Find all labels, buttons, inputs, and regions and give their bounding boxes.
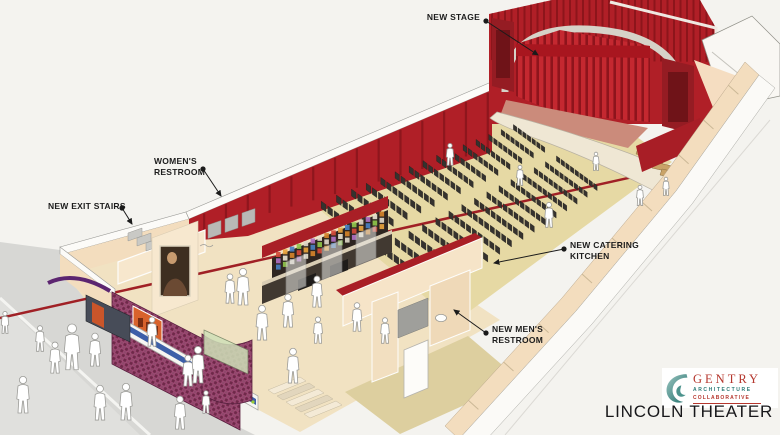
label-new-mens-restroom: NEW MEN'S RESTROOM [492, 324, 543, 345]
label-new-catering-kitchen: NEW CATERING KITCHEN [570, 240, 639, 261]
logo-firm-name: GENTRY [693, 373, 761, 386]
label-womens-restroom: WOMEN'S RESTROOM [154, 156, 205, 177]
project-title: LINCOLN THEATER [598, 402, 780, 422]
toilet [436, 314, 447, 321]
gentry-logo-mark [664, 371, 690, 405]
leader-womens-restroom [203, 169, 221, 196]
rendering-canvas: NEW STAGE WOMEN'S RESTROOM NEW EXIT STAI… [0, 0, 780, 435]
portrait-face [167, 252, 177, 264]
logo-sub1: ARCHITECTURE [693, 387, 761, 393]
label-new-exit-stairs: NEW EXIT STAIRS [48, 201, 126, 212]
restroom-door [404, 340, 428, 398]
label-new-stage: NEW STAGE [390, 12, 480, 23]
